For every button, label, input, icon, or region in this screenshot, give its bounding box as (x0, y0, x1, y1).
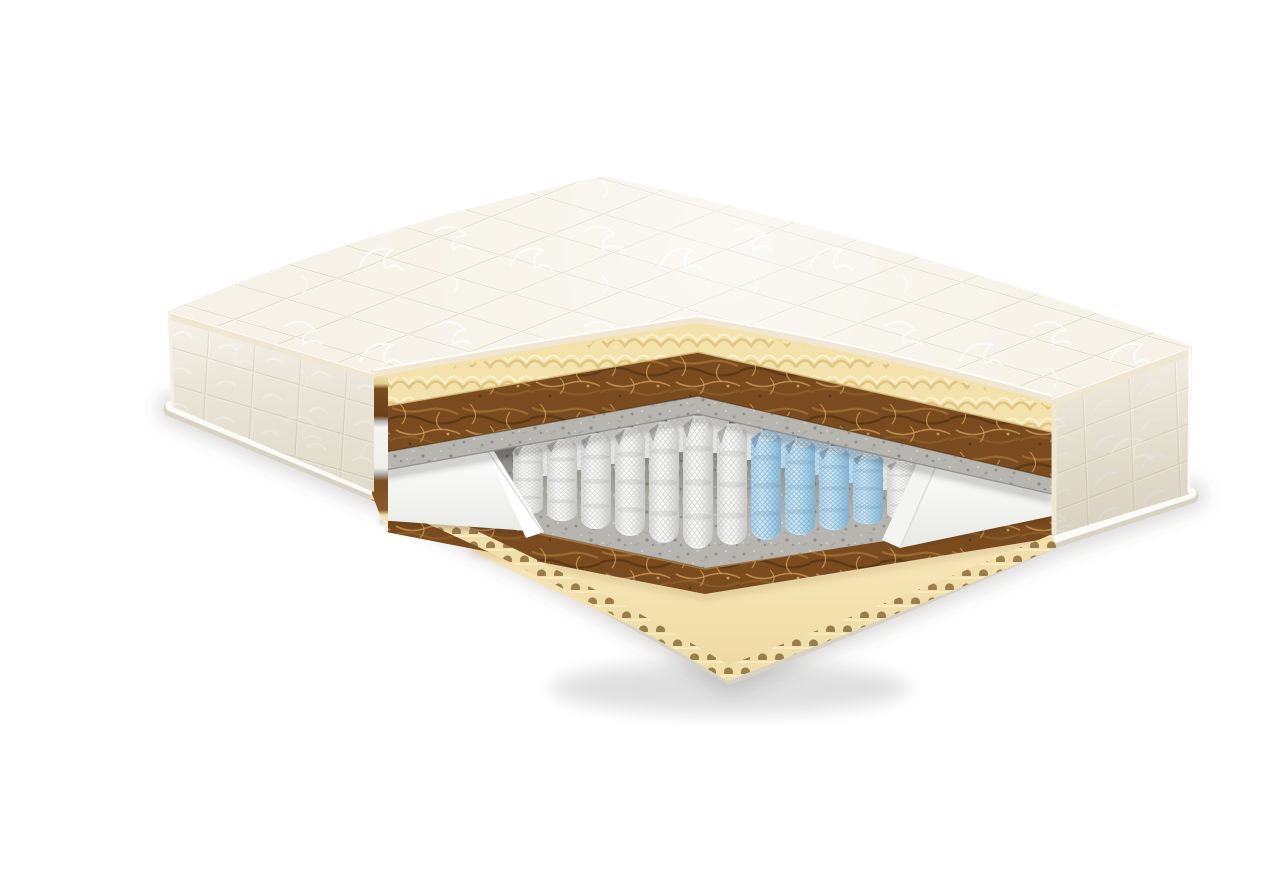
pocket-spring (785, 438, 816, 535)
pocket-spring (683, 415, 714, 548)
mattress-cutaway-illustration: 3D cutaway render of a two-sided mattres… (40, 16, 1280, 870)
mattress-cutaway-image (40, 16, 1280, 870)
pocket-spring (751, 430, 782, 540)
east-corner-highlight (1189, 350, 1190, 492)
pocket-spring (819, 446, 850, 530)
pocket-spring (547, 439, 578, 521)
pocket-spring (581, 433, 612, 529)
pocket-spring (717, 423, 748, 545)
pocket-spring (853, 453, 884, 525)
pocket-spring (649, 421, 680, 543)
cut-face-left-strip (372, 374, 388, 536)
pocket-spring (615, 427, 646, 536)
